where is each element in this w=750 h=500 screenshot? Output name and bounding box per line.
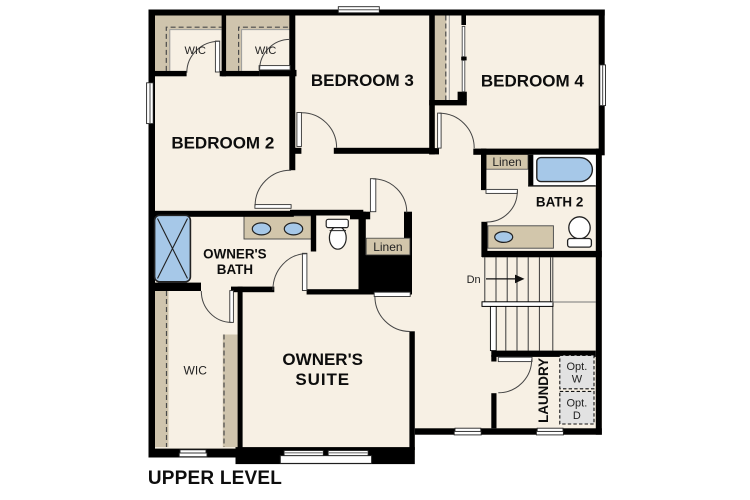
svg-text:OWNER'S: OWNER'S <box>203 246 267 261</box>
svg-text:SUITE: SUITE <box>295 370 350 389</box>
svg-text:Linen: Linen <box>373 240 402 254</box>
svg-text:OWNER'S: OWNER'S <box>282 350 363 369</box>
svg-text:BATH: BATH <box>217 262 253 277</box>
svg-text:BEDROOM 2: BEDROOM 2 <box>171 134 274 153</box>
svg-text:Linen: Linen <box>492 155 521 169</box>
svg-text:BATH 2: BATH 2 <box>536 195 583 210</box>
svg-text:W: W <box>572 374 583 386</box>
svg-text:BEDROOM 4: BEDROOM 4 <box>481 72 585 91</box>
svg-text:WIC: WIC <box>185 45 206 57</box>
svg-text:LAUNDRY: LAUNDRY <box>536 358 551 423</box>
svg-text:D: D <box>573 410 581 422</box>
svg-text:UPPER LEVEL: UPPER LEVEL <box>148 468 282 489</box>
svg-text:WIC: WIC <box>255 45 276 57</box>
svg-text:BEDROOM 3: BEDROOM 3 <box>311 71 414 90</box>
svg-text:WIC: WIC <box>184 363 208 377</box>
svg-text:Dn: Dn <box>467 274 481 286</box>
svg-text:Opt.: Opt. <box>567 361 588 373</box>
svg-text:Opt.: Opt. <box>567 397 588 409</box>
